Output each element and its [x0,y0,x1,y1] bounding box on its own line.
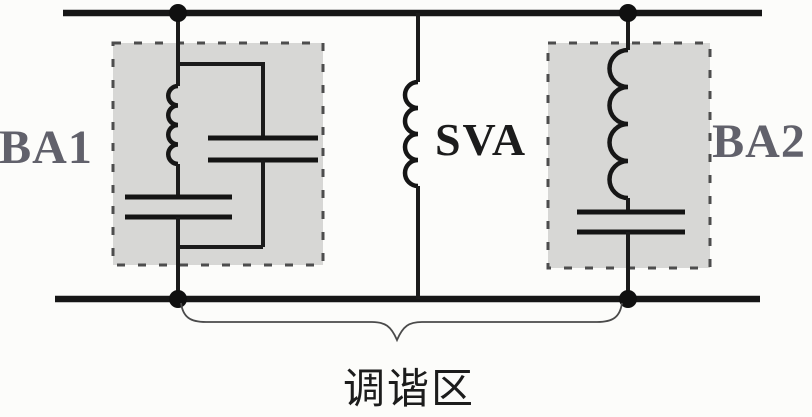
ba1-block [113,43,323,265]
bottom-left-junction-dot [169,290,187,308]
sva-inductor [405,82,418,186]
ba1-label: BA1 [0,121,93,174]
top-right-junction-dot [619,4,637,22]
tuning-zone-caption: 调谐区 [343,367,475,413]
sva-circuit [405,13,418,299]
circuit-diagram: BA1 SVA BA2 调谐区 [0,0,812,417]
tuning-zone-brace [181,303,622,340]
ba2-label: BA2 [712,115,806,168]
ba1-block-box [113,43,323,265]
sva-label: SVA [435,114,527,165]
circuit-figure: BA1 SVA BA2 调谐区 [0,0,812,417]
top-left-junction-dot [169,4,187,22]
